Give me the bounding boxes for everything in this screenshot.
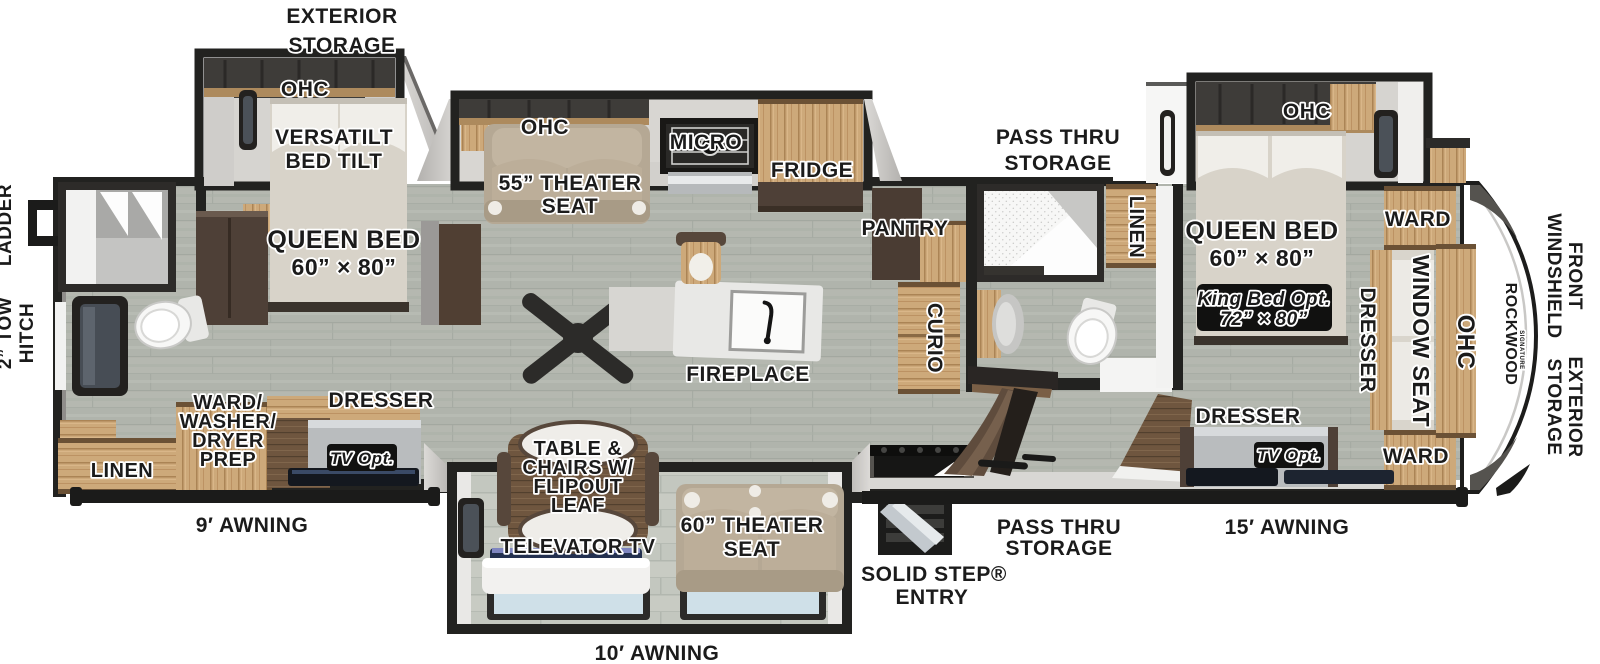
svg-text:QUEEN BED: QUEEN BED — [267, 226, 420, 254]
svg-text:HITCH: HITCH — [17, 303, 38, 364]
svg-text:DRESSER: DRESSER — [1195, 405, 1300, 428]
svg-text:SEAT: SEAT — [542, 195, 598, 218]
svg-text:STORAGE: STORAGE — [1005, 152, 1112, 175]
svg-text:55” THEATER: 55” THEATER — [499, 172, 642, 195]
svg-text:PASS THRU: PASS THRU — [997, 516, 1121, 539]
svg-text:OHC: OHC — [521, 116, 569, 139]
svg-text:OHC: OHC — [1452, 315, 1479, 370]
svg-text:OHC: OHC — [281, 78, 329, 101]
svg-text:EXTERIOR: EXTERIOR — [286, 5, 397, 28]
svg-text:WINDSHIELD: WINDSHIELD — [1543, 213, 1564, 338]
svg-text:STORAGE: STORAGE — [1543, 358, 1564, 455]
svg-text:LINEN: LINEN — [1125, 196, 1147, 259]
svg-text:CURIO: CURIO — [923, 303, 946, 373]
svg-text:BED TILT: BED TILT — [286, 150, 383, 173]
svg-text:WINDOW SEAT: WINDOW SEAT — [1408, 255, 1434, 427]
svg-text:10′ AWNING: 10′ AWNING — [595, 642, 720, 664]
svg-text:LEAF: LEAF — [551, 495, 605, 517]
svg-text:PREP: PREP — [200, 449, 256, 471]
svg-text:STORAGE: STORAGE — [289, 34, 396, 57]
svg-text:STORAGE: STORAGE — [1006, 537, 1113, 560]
svg-text:WARD: WARD — [1383, 445, 1449, 468]
svg-text:FRONT: FRONT — [1564, 242, 1585, 310]
svg-text:60” × 80”: 60” × 80” — [292, 254, 397, 280]
svg-text:SEAT: SEAT — [724, 538, 780, 561]
svg-text:ROCKWOOD: ROCKWOOD — [1502, 283, 1519, 386]
svg-text:MICRO: MICRO — [670, 131, 743, 154]
svg-text:FIREPLACE: FIREPLACE — [686, 363, 810, 386]
svg-text:King Bed Opt.: King Bed Opt. — [1197, 289, 1330, 310]
svg-text:EXTERIOR: EXTERIOR — [1564, 356, 1585, 457]
svg-text:ENTRY: ENTRY — [896, 586, 969, 609]
svg-text:PASS THRU: PASS THRU — [996, 126, 1120, 149]
svg-text:72” × 80”: 72” × 80” — [1220, 309, 1307, 330]
svg-text:DRESSER: DRESSER — [328, 389, 433, 412]
svg-text:SIGNATURE: SIGNATURE — [1518, 330, 1524, 369]
svg-text:WARD: WARD — [1385, 208, 1451, 231]
svg-text:QUEEN BED: QUEEN BED — [1185, 217, 1338, 245]
svg-text:DRESSER: DRESSER — [1356, 287, 1379, 392]
svg-text:60” THEATER: 60” THEATER — [681, 514, 824, 537]
svg-text:PANTRY: PANTRY — [862, 217, 949, 240]
svg-text:VERSATILT: VERSATILT — [275, 126, 393, 149]
svg-text:15′ AWNING: 15′ AWNING — [1225, 516, 1350, 539]
svg-text:TELEVATOR TV: TELEVATOR TV — [501, 536, 656, 558]
svg-text:TV Opt.: TV Opt. — [330, 449, 394, 468]
svg-text:2” TOW: 2” TOW — [0, 297, 16, 369]
svg-text:60” × 80”: 60” × 80” — [1210, 245, 1315, 271]
svg-text:SOLID STEP®: SOLID STEP® — [861, 563, 1007, 586]
svg-text:9′ AWNING: 9′ AWNING — [196, 514, 309, 537]
svg-text:TV Opt.: TV Opt. — [1257, 446, 1321, 465]
svg-text:LINEN: LINEN — [91, 460, 154, 482]
svg-text:FRIDGE: FRIDGE — [771, 159, 853, 182]
svg-text:LADDER: LADDER — [0, 184, 16, 266]
svg-text:OHC: OHC — [1283, 100, 1331, 123]
